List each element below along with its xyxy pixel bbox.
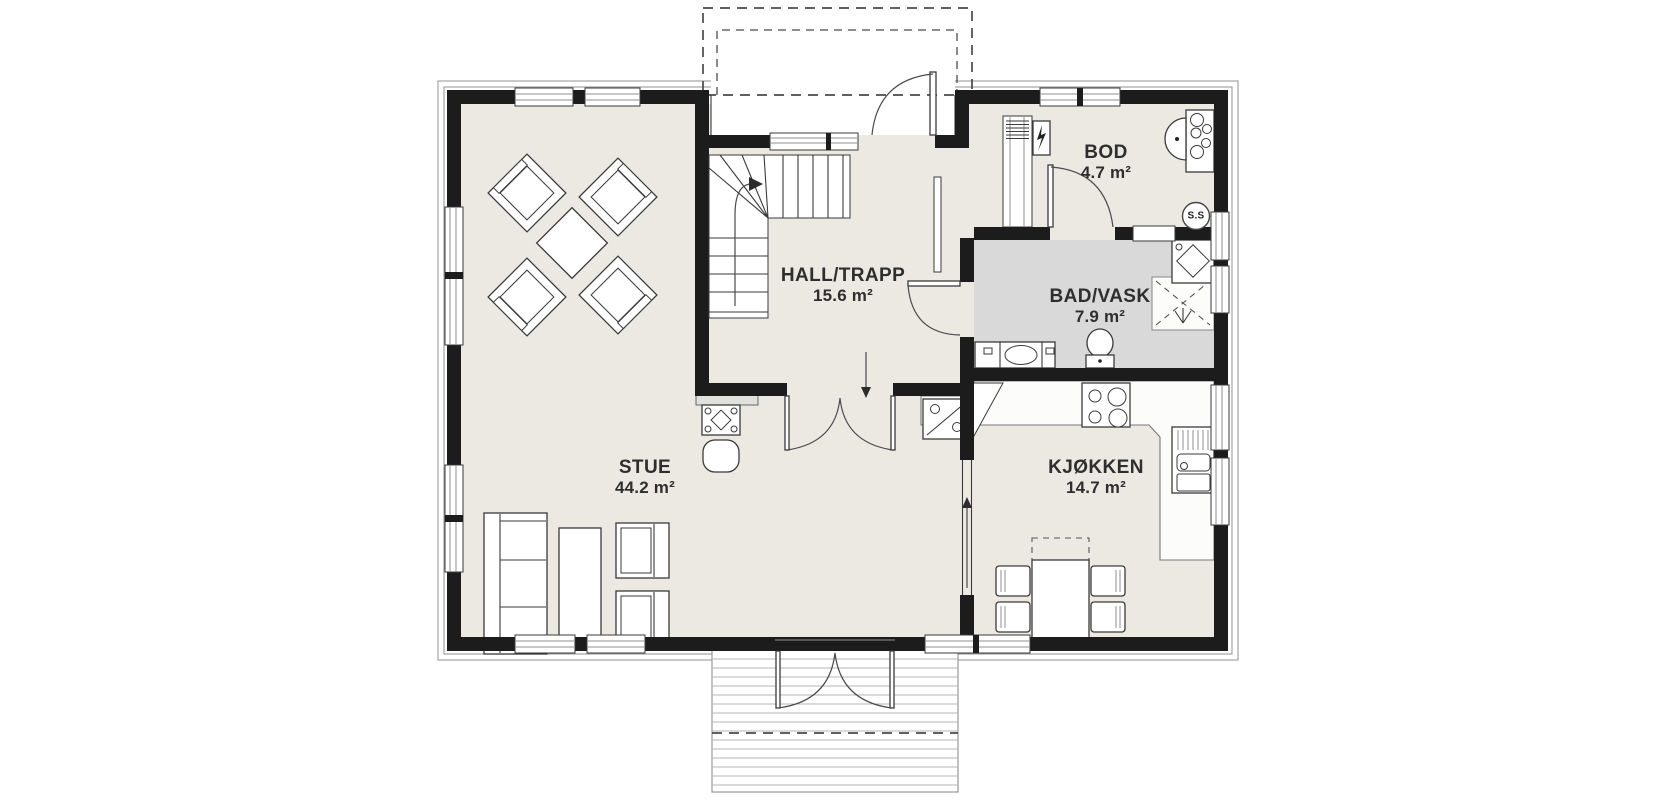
porch-floor [711, 30, 955, 135]
entry-window [770, 133, 858, 150]
shower-icon [1152, 277, 1214, 330]
room-name: BOD [1081, 143, 1131, 163]
ss-point-label: S.S [1187, 211, 1204, 222]
electrical-panel-icon [1033, 121, 1050, 155]
room-name: HALL/TRAPP [781, 266, 905, 286]
window [1211, 212, 1229, 260]
room-label-bad-vask: BAD/VASK 7.9 m² [1049, 287, 1150, 327]
window [1211, 385, 1229, 450]
wall-niche [1133, 226, 1175, 241]
round-stove [703, 440, 739, 472]
room-area: 7.9 m² [1049, 307, 1150, 327]
window [1040, 88, 1120, 106]
window [445, 207, 463, 345]
room-area: 14.7 m² [1048, 478, 1144, 498]
vanity-sink-icon [975, 342, 1055, 368]
vent-shaft [1003, 116, 1032, 227]
kitchen-sink-icon [1172, 427, 1214, 493]
thin-partition [934, 177, 941, 272]
room-label-kjokken: KJØKKEN 14.7 m² [1048, 458, 1144, 498]
room-label-stue: STUE 44.2 m² [615, 458, 675, 498]
room-area: 44.2 m² [615, 478, 675, 498]
room-area: 4.7 m² [1081, 163, 1131, 183]
window [445, 465, 463, 572]
dining-table [1032, 560, 1089, 640]
window [587, 635, 645, 653]
sofa [484, 513, 547, 654]
floor-plan-drawing [0, 0, 1670, 800]
room-area: 15.6 m² [781, 286, 905, 306]
coffee-table [559, 528, 601, 639]
room-name: STUE [615, 458, 675, 478]
armchair [616, 523, 669, 578]
window [1211, 458, 1229, 525]
window [1211, 266, 1229, 313]
floor-plan: STUE 44.2 m² HALL/TRAPP 15.6 m² BOD 4.7 … [0, 0, 1670, 800]
room-name: BAD/VASK [1049, 287, 1150, 307]
room-label-bod: BOD 4.7 m² [1081, 143, 1131, 183]
window [925, 635, 1030, 653]
washing-machine-icon [1172, 240, 1214, 283]
window [515, 88, 573, 106]
cooktop-icon [1082, 383, 1130, 427]
window [515, 635, 575, 653]
toilet-icon [1086, 329, 1114, 368]
room-name: KJØKKEN [1048, 458, 1144, 478]
window [585, 88, 640, 106]
terrace [712, 643, 958, 792]
room-label-hall: HALL/TRAPP 15.6 m² [781, 266, 905, 306]
